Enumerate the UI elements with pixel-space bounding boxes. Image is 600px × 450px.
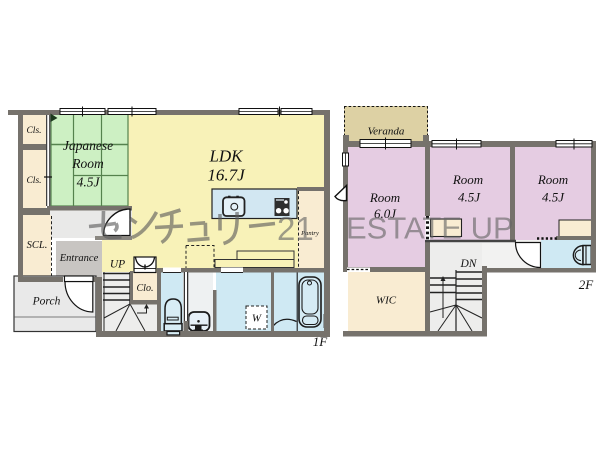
svg-text:16.7J: 16.7J [207, 166, 246, 185]
svg-text:Room: Room [369, 190, 400, 205]
svg-text:4.5J: 4.5J [77, 175, 101, 190]
svg-text:4.5J: 4.5J [458, 190, 481, 205]
svg-text:Room: Room [537, 172, 568, 187]
svg-text:Room: Room [71, 156, 104, 171]
svg-text:WIC: WIC [376, 295, 397, 307]
svg-text:Cls.: Cls. [26, 126, 41, 136]
svg-text:1F: 1F [313, 334, 329, 349]
svg-text:SCL.: SCL. [27, 240, 48, 251]
svg-text:Clo.: Clo. [137, 283, 154, 294]
svg-text:Room: Room [452, 172, 483, 187]
svg-text:Cls.: Cls. [26, 176, 41, 186]
svg-text:ESTATE UP: ESTATE UP [346, 211, 514, 246]
svg-text:21: 21 [277, 210, 314, 247]
svg-text:Japanese: Japanese [63, 138, 113, 153]
svg-text:DN: DN [460, 258, 478, 270]
svg-text:UP: UP [110, 259, 125, 271]
svg-text:Entrance: Entrance [59, 253, 99, 264]
svg-text:2F: 2F [579, 277, 595, 292]
svg-text:4.5J: 4.5J [542, 190, 565, 205]
svg-text:LDK: LDK [208, 147, 244, 166]
svg-text:Veranda: Veranda [368, 126, 405, 138]
svg-text:Porch: Porch [32, 296, 61, 308]
svg-text:W: W [252, 313, 262, 325]
